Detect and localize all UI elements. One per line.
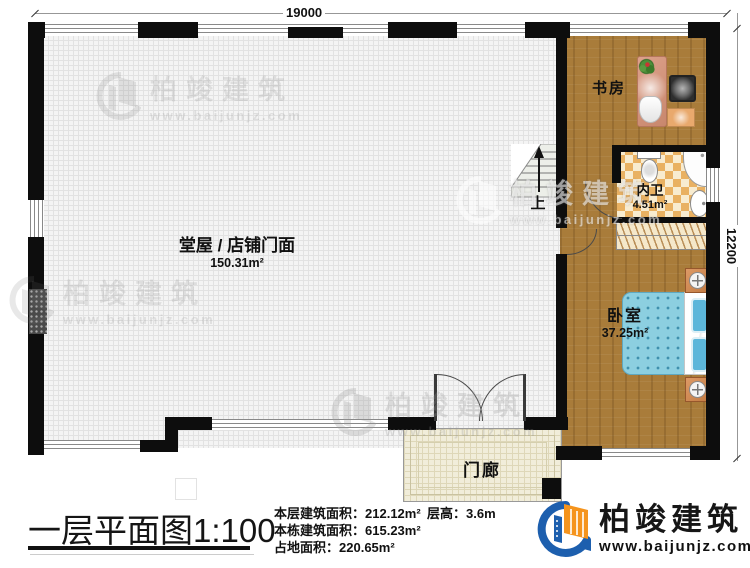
porch-column [542, 478, 561, 499]
floor-height-label: 层高： [427, 506, 466, 521]
window-band-hall-left [42, 440, 142, 450]
plant [637, 57, 656, 76]
stairs-up-label: 上 [526, 195, 550, 212]
wall-right-upper [706, 22, 720, 168]
study-chair [639, 96, 662, 123]
wall-hall-bottom-corner [28, 440, 44, 455]
bathroom-label: 内卫 4.51m² [620, 183, 680, 211]
window-band-top [28, 24, 720, 36]
window-band-bedroom-bottom [600, 448, 690, 459]
wall-top-pier-4 [388, 22, 457, 38]
window-band-shopfront [212, 419, 388, 430]
bathroom-name: 内卫 [620, 183, 680, 199]
wall-left-lower [28, 237, 44, 455]
wall-top-pier-2 [138, 22, 198, 38]
wall-left-upper [28, 22, 44, 200]
meter-box [29, 289, 47, 334]
stat-label: 本栋建筑面积： [274, 523, 365, 538]
company-name: 柏竣建筑 [599, 504, 750, 535]
wall-bathroom-top [612, 145, 708, 152]
drawing-title: 一层平面图1:100 [28, 504, 276, 552]
lamp-icon [689, 272, 706, 289]
drawing-title-text: 一层平面图 [28, 512, 193, 549]
wall-right-lower [706, 202, 720, 460]
study-label: 书房 [592, 80, 626, 97]
wall-bathroom-bottom [612, 217, 708, 223]
toilet-bowl [641, 159, 658, 183]
dimension-top-value: 19000 [283, 5, 325, 20]
porch-label: 门廊 [432, 461, 532, 481]
wall-bathroom-left [612, 145, 621, 183]
wall-dividing-lower [556, 254, 567, 426]
title-underline [28, 546, 250, 550]
bedroom-name: 卧室 [585, 308, 665, 326]
dimension-line-top [35, 13, 727, 14]
stat-land-area: 占地面积：220.65m² [274, 539, 421, 556]
company-logo: 柏竣建筑 www.baijunjz.com [536, 499, 750, 559]
wall-dividing-upper [556, 36, 567, 228]
floor-plan-sheet: 柏竣建筑 www.baijunjz.com 柏竣建筑 www.baijunjz.… [0, 0, 750, 568]
floor-height-value: 3.6m [466, 506, 496, 521]
bedroom-area: 37.25m² [585, 326, 665, 340]
area-stats: 本层建筑面积：212.12m² 本栋建筑面积：615.23m² 占地面积：220… [274, 505, 421, 556]
company-website: www.baijunjz.com [599, 538, 750, 555]
column-outline [175, 478, 197, 500]
stat-floor-area: 本层建筑面积：212.12m² [274, 505, 421, 522]
bathroom-area: 4.51m² [620, 199, 680, 212]
stat-label: 占地面积： [274, 540, 339, 555]
hall-label: 堂屋 / 店铺门面 150.31m² [147, 236, 327, 270]
floor-height: 层高：3.6m [427, 505, 496, 522]
bedroom-label: 卧室 37.25m² [585, 308, 665, 341]
stat-building-area: 本栋建筑面积：615.23m² [274, 522, 421, 539]
lamp-icon [689, 381, 706, 398]
computer-monitor [669, 75, 696, 102]
wall-bedroom-bottom-2 [690, 446, 720, 460]
hall-name: 堂屋 / 店铺门面 [147, 236, 327, 256]
stat-label: 本层建筑面积： [274, 506, 365, 521]
stat-value: 615.23m² [365, 523, 421, 538]
drawing-scale: 1:100 [193, 512, 276, 549]
wall-top-pier-3 [288, 27, 343, 38]
wall-hall-bottom-2 [175, 417, 212, 430]
wall-bedroom-bottom-1 [556, 446, 602, 460]
hall-area: 150.31m² [147, 256, 327, 270]
study-side-table [667, 108, 695, 127]
stat-value: 212.12m² [365, 506, 421, 521]
stat-value: 220.65m² [339, 540, 395, 555]
dimension-right-value: 12200 [724, 225, 739, 267]
wall-hall-bottom-3 [388, 417, 436, 430]
wardrobe [616, 219, 707, 250]
title-underline-thin [30, 554, 254, 555]
company-logo-icon [536, 499, 592, 559]
